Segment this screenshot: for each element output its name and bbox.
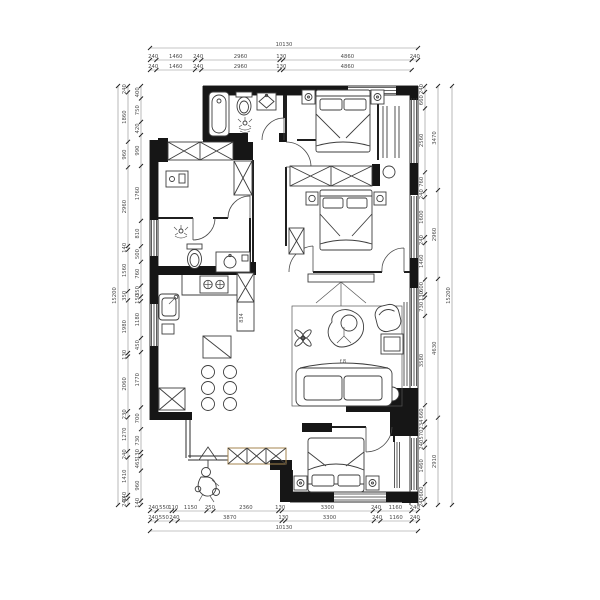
entry-arrow-icon bbox=[199, 447, 217, 468]
living-room: f.8 bbox=[292, 274, 403, 406]
svg-text:240: 240 bbox=[148, 54, 159, 60]
svg-text:230: 230 bbox=[122, 409, 128, 420]
wardrobe-band bbox=[168, 142, 233, 160]
svg-text:1180: 1180 bbox=[135, 312, 141, 326]
svg-text:15200: 15200 bbox=[112, 286, 118, 303]
entry bbox=[195, 447, 286, 502]
dim-strip-left-total: 15200 bbox=[112, 84, 120, 507]
svg-text:130: 130 bbox=[278, 515, 289, 521]
svg-text:250: 250 bbox=[205, 505, 216, 511]
svg-text:760: 760 bbox=[419, 176, 425, 187]
toilet bbox=[236, 92, 252, 115]
nightstand bbox=[366, 476, 379, 490]
svg-text:130: 130 bbox=[276, 54, 287, 60]
svg-text:760: 760 bbox=[135, 268, 141, 279]
dining-chairs bbox=[202, 366, 237, 411]
svg-text:4860: 4860 bbox=[341, 64, 355, 70]
svg-text:2960: 2960 bbox=[234, 64, 248, 70]
master-bedroom bbox=[290, 90, 399, 186]
side-table bbox=[381, 334, 403, 354]
window-right-lower bbox=[412, 438, 417, 490]
svg-text:1160: 1160 bbox=[389, 515, 403, 521]
svg-text:240: 240 bbox=[419, 496, 425, 507]
svg-text:10130: 10130 bbox=[276, 42, 293, 48]
window-bedroom4-south bbox=[334, 494, 386, 500]
armchair bbox=[373, 302, 403, 333]
svg-text:1150: 1150 bbox=[184, 505, 198, 511]
stool bbox=[383, 166, 395, 178]
bed-bedroom4 bbox=[308, 438, 364, 492]
svg-text:140: 140 bbox=[122, 242, 128, 253]
svg-text:15200: 15200 bbox=[446, 286, 452, 303]
closet-small bbox=[289, 228, 304, 254]
svg-text:3300: 3300 bbox=[321, 505, 335, 511]
window-left-bedroom bbox=[152, 220, 157, 256]
vanity bbox=[216, 252, 250, 272]
shower-head-icon bbox=[174, 225, 188, 238]
svg-text:10130: 10130 bbox=[276, 525, 293, 531]
window-left-kitchen bbox=[152, 304, 157, 346]
svg-text:1600: 1600 bbox=[419, 210, 425, 224]
svg-text:240: 240 bbox=[419, 189, 425, 200]
svg-text:130: 130 bbox=[122, 349, 128, 360]
dim-strip-top-total: 10130 bbox=[148, 42, 420, 50]
svg-text:234: 234 bbox=[419, 419, 425, 430]
svg-text:600: 600 bbox=[419, 281, 425, 292]
svg-text:1770: 1770 bbox=[135, 372, 141, 386]
coffee-table-label: f.8 bbox=[340, 359, 346, 365]
nightstand bbox=[302, 90, 315, 104]
svg-text:240: 240 bbox=[371, 505, 382, 511]
svg-text:240: 240 bbox=[122, 84, 128, 95]
svg-text:2910: 2910 bbox=[432, 454, 438, 468]
closet bbox=[234, 161, 252, 195]
svg-text:730: 730 bbox=[419, 301, 425, 312]
svg-text:2360: 2360 bbox=[239, 505, 253, 511]
bathtub bbox=[209, 92, 229, 136]
svg-text:1760: 1760 bbox=[135, 186, 141, 200]
nightstand bbox=[306, 192, 318, 205]
svg-text:600: 600 bbox=[419, 486, 425, 497]
svg-text:240: 240 bbox=[410, 515, 421, 521]
nightstand bbox=[371, 90, 384, 104]
floor-plan-page: 10130 240146024029601304860240 240146024… bbox=[0, 0, 600, 600]
svg-text:990: 990 bbox=[135, 145, 141, 156]
svg-text:960: 960 bbox=[122, 149, 128, 160]
svg-text:1560: 1560 bbox=[122, 263, 128, 277]
svg-text:150: 150 bbox=[135, 293, 141, 304]
svg-text:2560: 2560 bbox=[419, 133, 425, 147]
fridge bbox=[159, 388, 185, 410]
svg-text:465: 465 bbox=[135, 458, 141, 468]
svg-text:240: 240 bbox=[410, 54, 421, 60]
cabinet-depth-label: 834 bbox=[239, 313, 245, 323]
svg-text:1410: 1410 bbox=[122, 469, 128, 483]
svg-text:2960: 2960 bbox=[234, 54, 248, 60]
bed-master bbox=[316, 90, 370, 152]
dim-strip-bottom-row1: 2405501101150250236013033002401160240 bbox=[148, 505, 420, 513]
door-bath2 bbox=[193, 218, 215, 240]
svg-text:350: 350 bbox=[122, 290, 128, 301]
dim-strip-left-outer: 2401860960296014015603501980130206023012… bbox=[122, 84, 130, 507]
door-balcony bbox=[382, 248, 404, 272]
svg-text:130: 130 bbox=[135, 448, 141, 459]
svg-text:240: 240 bbox=[419, 439, 425, 450]
svg-text:240: 240 bbox=[148, 64, 159, 70]
sofa bbox=[296, 363, 392, 406]
svg-text:570: 570 bbox=[419, 429, 425, 440]
nightstand bbox=[294, 476, 307, 490]
svg-text:750: 750 bbox=[135, 105, 141, 116]
svg-text:110: 110 bbox=[168, 505, 179, 511]
svg-text:1460: 1460 bbox=[169, 64, 183, 70]
svg-text:240: 240 bbox=[148, 515, 159, 521]
dim-strip-right-outer: 3470296046302910 bbox=[432, 84, 440, 507]
bathroom1 bbox=[209, 92, 276, 136]
sliding-door-living bbox=[404, 302, 407, 386]
svg-text:1160: 1160 bbox=[389, 505, 403, 511]
svg-text:4860: 4860 bbox=[341, 54, 355, 60]
door-bedroom4 bbox=[366, 427, 392, 452]
svg-text:240: 240 bbox=[193, 64, 204, 70]
svg-text:1270: 1270 bbox=[122, 427, 128, 441]
svg-text:3580: 3580 bbox=[419, 353, 425, 367]
svg-text:3870: 3870 bbox=[223, 515, 237, 521]
door-bedroom2 bbox=[228, 196, 250, 218]
svg-text:240: 240 bbox=[419, 234, 425, 245]
window-right-mid bbox=[412, 196, 417, 258]
tv bbox=[308, 274, 374, 306]
svg-text:240: 240 bbox=[122, 449, 128, 460]
lounge-chair bbox=[328, 310, 363, 347]
sideboard bbox=[203, 336, 231, 358]
svg-text:240: 240 bbox=[122, 496, 128, 507]
dim-strip-top-row2: 240146024029601304860 bbox=[148, 64, 414, 72]
svg-text:400: 400 bbox=[135, 87, 141, 98]
svg-text:1860: 1860 bbox=[122, 110, 128, 124]
nightstand bbox=[374, 192, 386, 205]
window-bedroom4-east bbox=[395, 442, 400, 488]
svg-text:960: 960 bbox=[135, 480, 141, 491]
svg-text:130: 130 bbox=[275, 505, 286, 511]
svg-text:240: 240 bbox=[372, 515, 383, 521]
svg-text:240: 240 bbox=[193, 54, 204, 60]
svg-text:810: 810 bbox=[135, 228, 141, 239]
kitchen-sink bbox=[159, 294, 179, 320]
closet-rods bbox=[383, 106, 399, 158]
plant-icon bbox=[293, 328, 312, 347]
svg-text:1460: 1460 bbox=[169, 54, 183, 60]
dim-strip-right-inner: 2406602560760240160024014606001307303580… bbox=[419, 83, 427, 507]
svg-text:3470: 3470 bbox=[432, 131, 438, 145]
window-right-living bbox=[412, 288, 417, 386]
svg-text:140: 140 bbox=[135, 497, 141, 508]
floor-plan-canvas: 10130 240146024029601304860240 240146024… bbox=[0, 0, 600, 600]
svg-text:420: 420 bbox=[135, 123, 141, 134]
svg-text:2960: 2960 bbox=[122, 199, 128, 213]
svg-text:240: 240 bbox=[148, 505, 159, 511]
bed-bedroom3 bbox=[320, 190, 372, 250]
svg-text:450: 450 bbox=[135, 339, 141, 350]
dim-strip-top-row1: 240146024029601304860240 bbox=[148, 54, 421, 62]
svg-text:130: 130 bbox=[276, 64, 287, 70]
svg-text:4630: 4630 bbox=[432, 341, 438, 355]
svg-text:1980: 1980 bbox=[122, 319, 128, 333]
svg-text:730: 730 bbox=[135, 435, 141, 446]
bedroom3 bbox=[289, 190, 386, 254]
svg-text:660: 660 bbox=[419, 408, 425, 419]
person-figure bbox=[195, 468, 219, 503]
desk bbox=[166, 171, 188, 187]
dim-strip-bottom-total: 10130 bbox=[148, 525, 420, 533]
dim-strip-bottom-row2: 240550240387013033002401160240 bbox=[148, 515, 420, 523]
svg-text:2060: 2060 bbox=[122, 376, 128, 390]
svg-text:3300: 3300 bbox=[323, 515, 337, 521]
svg-text:2960: 2960 bbox=[432, 227, 438, 241]
svg-text:130: 130 bbox=[419, 290, 425, 301]
dim-strip-left-inner: 4007504209901760810500760350150118045017… bbox=[135, 84, 143, 508]
window-right-upper bbox=[412, 98, 417, 163]
wash-basin bbox=[257, 93, 276, 110]
toilet bbox=[187, 244, 202, 269]
drainboard bbox=[162, 324, 174, 334]
wardrobe-master bbox=[290, 166, 372, 186]
svg-text:660: 660 bbox=[419, 95, 425, 106]
svg-text:500: 500 bbox=[135, 248, 141, 259]
svg-text:1460: 1460 bbox=[419, 254, 425, 268]
door-master-bedroom bbox=[286, 142, 311, 167]
svg-text:700: 700 bbox=[135, 413, 141, 424]
shower-head-icon bbox=[238, 117, 252, 133]
svg-text:1460: 1460 bbox=[419, 459, 425, 473]
stove bbox=[200, 276, 228, 293]
svg-text:240: 240 bbox=[419, 83, 425, 94]
dim-strip-right-total: 15200 bbox=[446, 84, 454, 507]
svg-text:240: 240 bbox=[169, 515, 180, 521]
dining-area bbox=[202, 336, 237, 411]
bathroom2 bbox=[174, 225, 250, 272]
svg-text:550: 550 bbox=[159, 515, 170, 521]
